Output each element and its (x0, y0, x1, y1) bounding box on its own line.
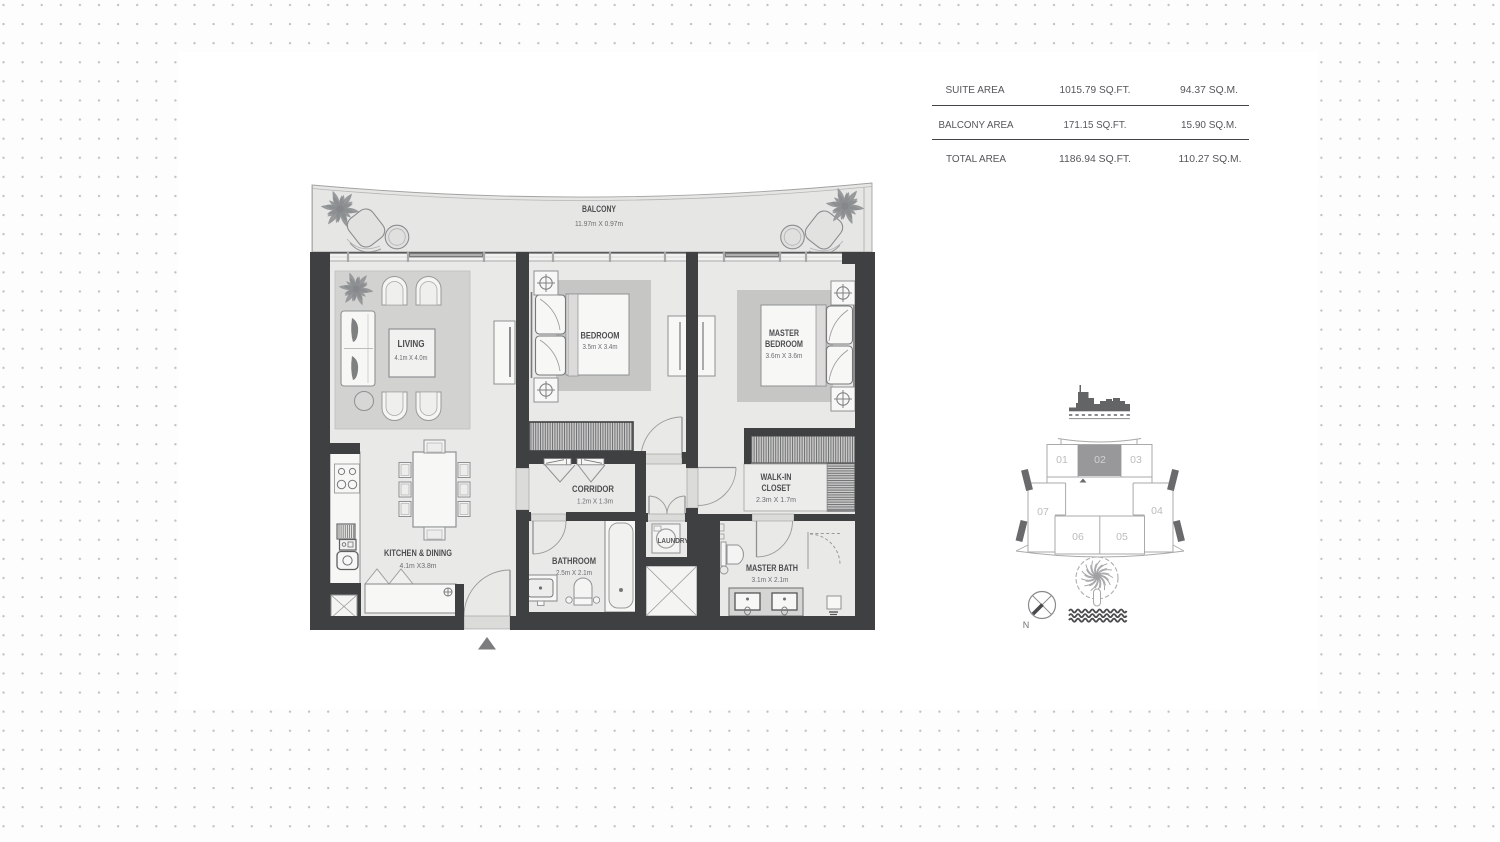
svg-text:05: 05 (1116, 531, 1128, 543)
svg-text:1.2m X 1.3m: 1.2m X 1.3m (577, 497, 613, 506)
svg-text:CORRIDOR: CORRIDOR (572, 484, 614, 494)
svg-text:CLOSET: CLOSET (762, 483, 791, 493)
svg-text:BATHROOM: BATHROOM (552, 556, 596, 566)
svg-text:3.5m X 3.4m: 3.5m X 3.4m (583, 342, 618, 351)
svg-text:MASTER: MASTER (769, 328, 799, 339)
svg-text:110.27 SQ.M.: 110.27 SQ.M. (1179, 153, 1242, 165)
svg-text:94.37 SQ.M.: 94.37 SQ.M. (1180, 84, 1238, 96)
svg-text:03: 03 (1130, 454, 1142, 466)
svg-text:15.90 SQ.M.: 15.90 SQ.M. (1181, 119, 1237, 131)
svg-text:LAUNDRY: LAUNDRY (658, 536, 689, 545)
svg-text:LIVING: LIVING (398, 339, 425, 350)
svg-text:06: 06 (1072, 531, 1084, 543)
svg-text:BEDROOM: BEDROOM (765, 339, 803, 350)
svg-text:SUITE AREA: SUITE AREA (946, 84, 1005, 96)
svg-text:BALCONY: BALCONY (582, 204, 616, 214)
svg-text:MASTER BATH: MASTER BATH (746, 563, 798, 573)
svg-text:N: N (1023, 620, 1030, 630)
svg-text:BEDROOM: BEDROOM (581, 331, 620, 342)
svg-text:3.6m X 3.6m: 3.6m X 3.6m (766, 351, 803, 360)
svg-text:TOTAL AREA: TOTAL AREA (946, 153, 1006, 165)
svg-text:BALCONY AREA: BALCONY AREA (939, 119, 1014, 131)
svg-text:04: 04 (1151, 505, 1163, 517)
svg-text:11.97m X 0.97m: 11.97m X 0.97m (575, 219, 623, 228)
svg-text:01: 01 (1056, 454, 1068, 466)
svg-text:02: 02 (1094, 454, 1106, 466)
svg-text:4.1m X 4.0m: 4.1m X 4.0m (395, 353, 428, 362)
svg-text:4.1m X3.8m: 4.1m X3.8m (400, 561, 437, 570)
svg-text:WALK-IN: WALK-IN (761, 472, 792, 482)
svg-text:1186.94 SQ.FT.: 1186.94 SQ.FT. (1059, 153, 1131, 165)
svg-text:2.5m X 2.1m: 2.5m X 2.1m (556, 568, 592, 577)
svg-text:1015.79 SQ.FT.: 1015.79 SQ.FT. (1060, 84, 1131, 96)
svg-text:171.15 SQ.FT.: 171.15 SQ.FT. (1064, 119, 1127, 131)
svg-text:3.1m X 2.1m: 3.1m X 2.1m (752, 575, 789, 584)
svg-text:2.3m X 1.7m: 2.3m X 1.7m (756, 495, 796, 504)
svg-text:KITCHEN & DINING: KITCHEN & DINING (384, 548, 452, 559)
svg-text:07: 07 (1037, 506, 1049, 518)
